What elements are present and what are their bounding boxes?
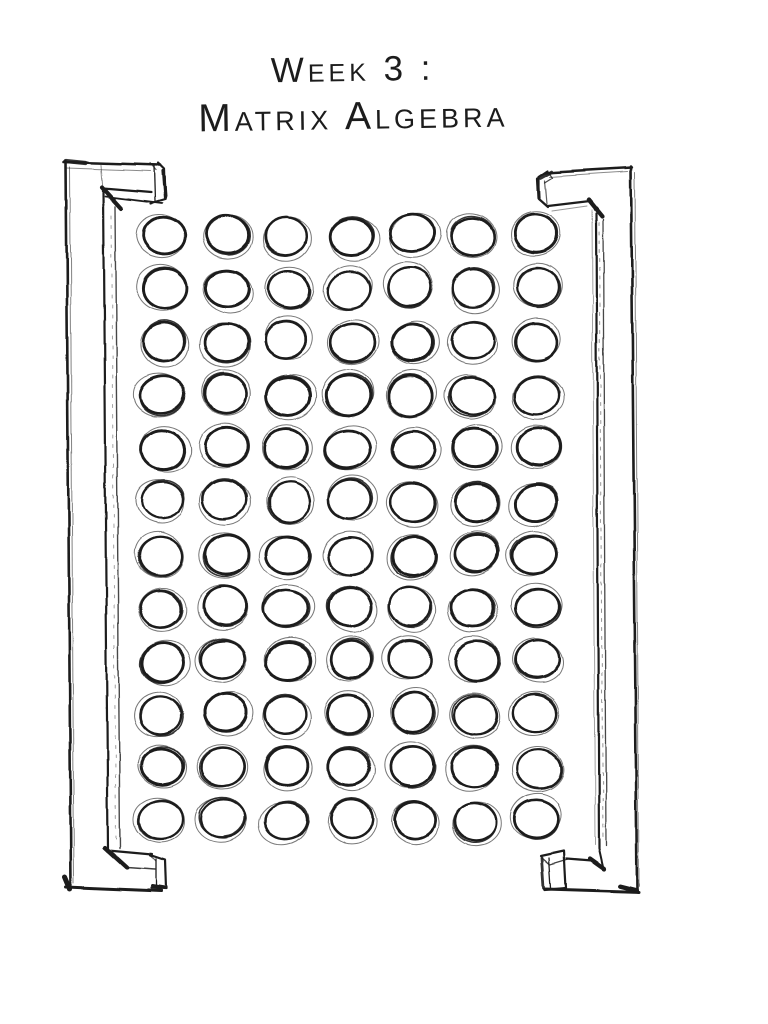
matrix-cell [194,637,247,683]
matrix-cell [264,476,316,527]
matrix-cell [132,260,191,315]
matrix-cell [130,687,188,742]
matrix-cell [264,266,316,315]
matrix-cell [130,474,189,529]
matrix-cell [321,741,380,797]
matrix-cell [379,632,434,682]
notebook-page: Week 3 : Matrix Algebra [0,0,768,1024]
matrix-cell [384,793,445,851]
matrix-cell [259,741,318,796]
matrix-cell [198,530,253,581]
matrix-cell [445,418,508,477]
matrix-cell [135,420,197,478]
matrix-cell [133,740,190,793]
matrix-sketch [0,0,768,1024]
matrix-cell [262,314,314,362]
matrix-cell [265,637,317,682]
matrix-cell [380,578,444,640]
matrix-cell [447,318,498,366]
matrix-cell [196,421,251,470]
matrix-cell [447,636,503,686]
matrix-cell [325,474,378,523]
matrix-cell [322,688,377,738]
matrix-cell [508,208,564,259]
matrix-cell [196,364,256,422]
matrix-cell [325,795,380,847]
matrix-cell [321,579,383,639]
matrix-cell [389,685,441,736]
matrix-cell [320,629,381,688]
matrix-cell [132,209,189,262]
matrix-cell [316,256,380,317]
matrix-cell [506,689,562,739]
matrix-cell [130,794,188,846]
matrix-cell [444,475,506,533]
matrix-cell [199,685,259,742]
matrix-cell [381,737,439,791]
matrix-cell [197,320,253,371]
matrix-cell [446,585,499,635]
matrix-cell [509,581,563,629]
matrix-cell [203,212,253,259]
matrix-cell [442,741,502,796]
matrix-cell [383,530,442,585]
matrix-cell [440,369,500,423]
matrix-cell [323,314,384,370]
matrix-cell [450,800,503,848]
matrix-cell [446,263,505,320]
matrix-cell [319,527,378,579]
matrix-cell [380,363,444,424]
matrix-cell [388,317,444,368]
matrix-cell [255,797,312,848]
matrix-cell [260,369,322,426]
matrix-cell [133,372,188,419]
matrix-cell [127,524,191,585]
matrix-cell [381,476,443,533]
matrix-cell [505,788,566,844]
sketch-ink-layer [64,161,639,892]
matrix-cell [197,263,260,321]
matrix-cell [512,373,565,420]
matrix-cell [196,743,249,791]
matrix-cell [255,532,313,584]
matrix-cell [506,479,562,529]
matrix-cell [384,207,447,264]
matrix-cell [136,317,194,373]
matrix-cell [500,524,563,583]
matrix-cell [318,366,377,421]
matrix-cell [513,263,562,309]
matrix-cell [329,216,380,261]
matrix-cell [261,582,316,631]
matrix-cell [508,314,565,366]
matrix-cell [319,418,382,476]
matrix-cell [378,257,438,313]
matrix-cell [507,633,568,689]
matrix-cell [258,690,316,745]
matrix-cell [138,639,192,687]
matrix-cell [195,796,247,843]
matrix-cell [262,424,314,473]
matrix-cell [511,425,562,470]
matrix-cell [441,208,500,263]
matrix-cell [199,476,252,526]
matrix-cells [127,207,568,851]
matrix-cell [137,586,189,633]
matrix-sketch-canvas [0,0,768,1024]
matrix-cell [195,582,250,632]
matrix-cell [260,214,314,264]
matrix-cell [443,523,506,583]
matrix-cell [511,745,564,792]
matrix-cell [446,689,505,744]
matrix-cell [388,423,444,474]
